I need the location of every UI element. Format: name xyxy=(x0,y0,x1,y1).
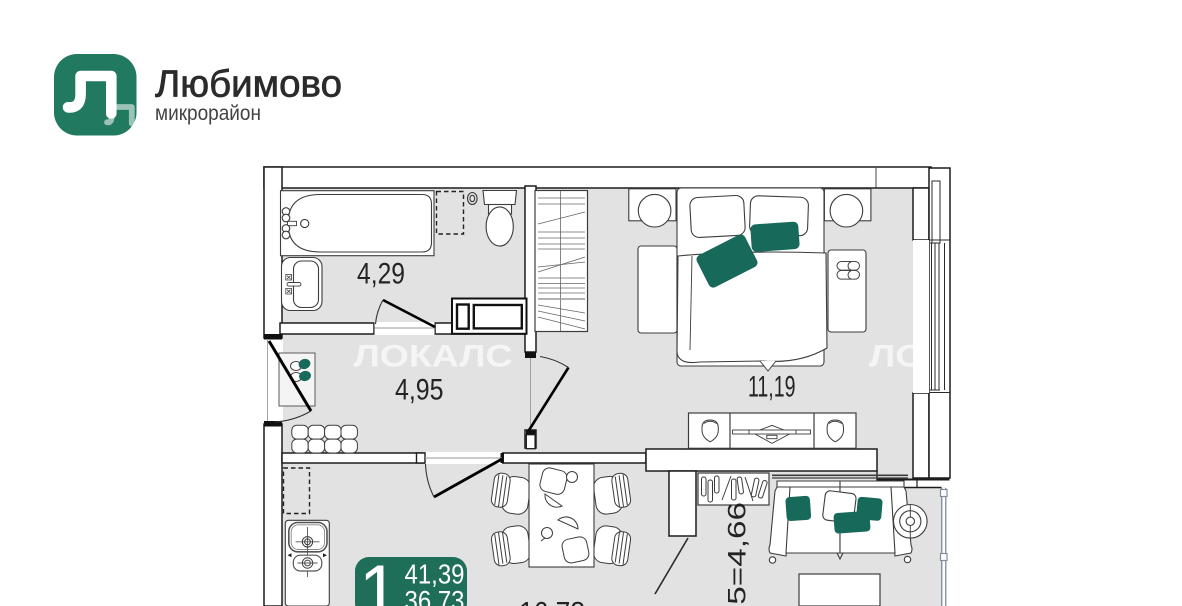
svg-text:,5=4,66: ,5=4,66 xyxy=(724,502,752,606)
svg-text:11,19: 11,19 xyxy=(748,371,796,404)
svg-text:микрорайон: микрорайон xyxy=(155,102,261,125)
svg-text:36,73: 36,73 xyxy=(405,585,465,606)
svg-text:Любимово: Любимово xyxy=(155,64,342,106)
svg-text:16,78: 16,78 xyxy=(519,597,585,606)
svg-text:ЛОКАЛС: ЛОКАЛС xyxy=(354,337,513,373)
svg-text:4,95: 4,95 xyxy=(395,374,444,407)
svg-text:4,29: 4,29 xyxy=(357,258,405,291)
svg-text:1: 1 xyxy=(359,550,399,606)
